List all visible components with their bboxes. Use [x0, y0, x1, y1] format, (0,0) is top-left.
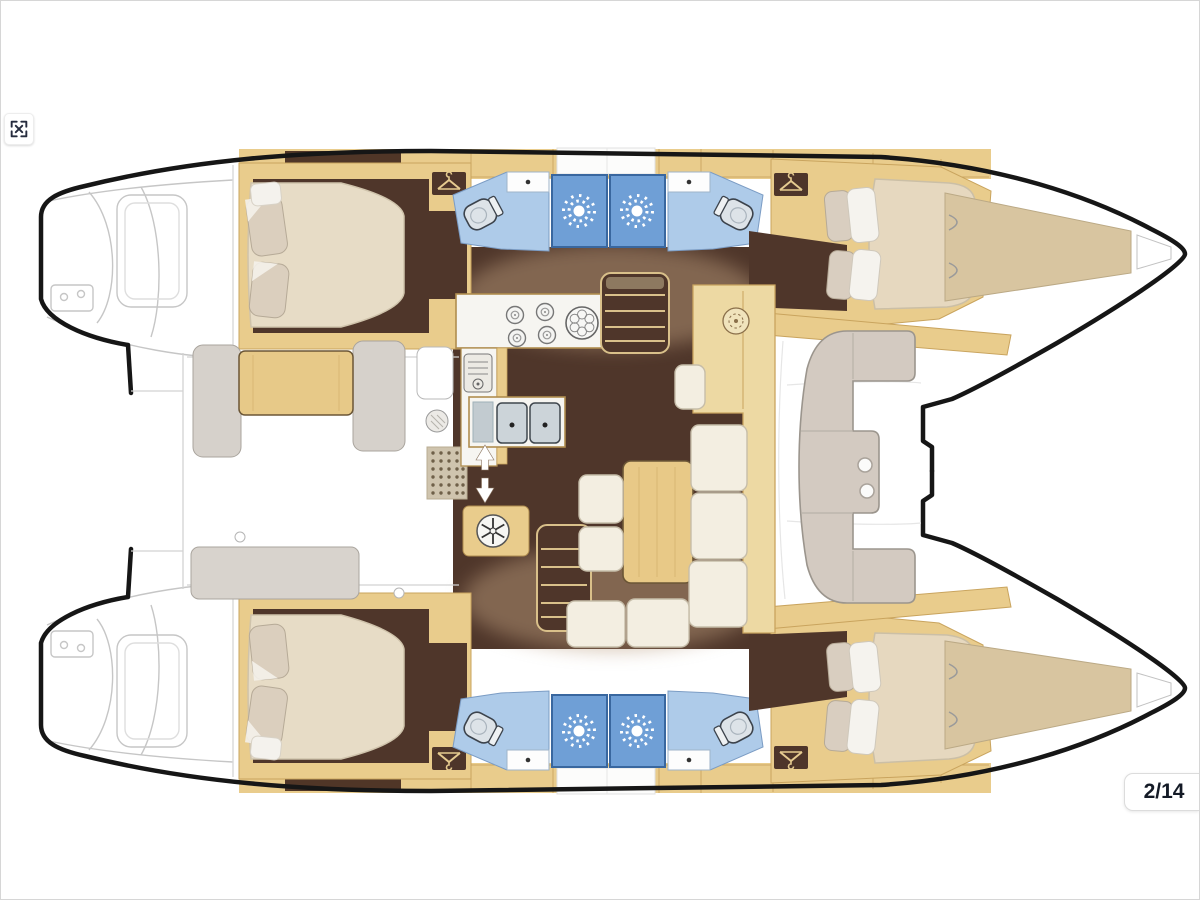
cupholder [860, 484, 874, 498]
page-indicator-label: 2/14 [1144, 780, 1185, 804]
double-sink [469, 397, 565, 447]
image-viewer: 2/14 [0, 0, 1200, 900]
cockpit-sunpad [191, 547, 359, 599]
catamaran-floor-plan [1, 1, 1199, 899]
saloon-table [623, 461, 693, 583]
cockpit-table [239, 351, 353, 415]
cupholder [858, 458, 872, 472]
fullscreen-button[interactable] [4, 113, 34, 145]
sideboard-hatch [723, 308, 749, 334]
companionway-steps-port [601, 273, 669, 353]
cockpit-sink-unit [417, 347, 453, 399]
sink-strainer [566, 307, 598, 339]
fan-hatch [463, 506, 529, 556]
expand-arrows-icon [8, 118, 30, 140]
galley-appliance [464, 354, 492, 392]
gallery-page-indicator[interactable]: 2/14 [1124, 773, 1199, 811]
cockpit-bench [353, 341, 405, 451]
cockpit-bench [193, 345, 241, 457]
